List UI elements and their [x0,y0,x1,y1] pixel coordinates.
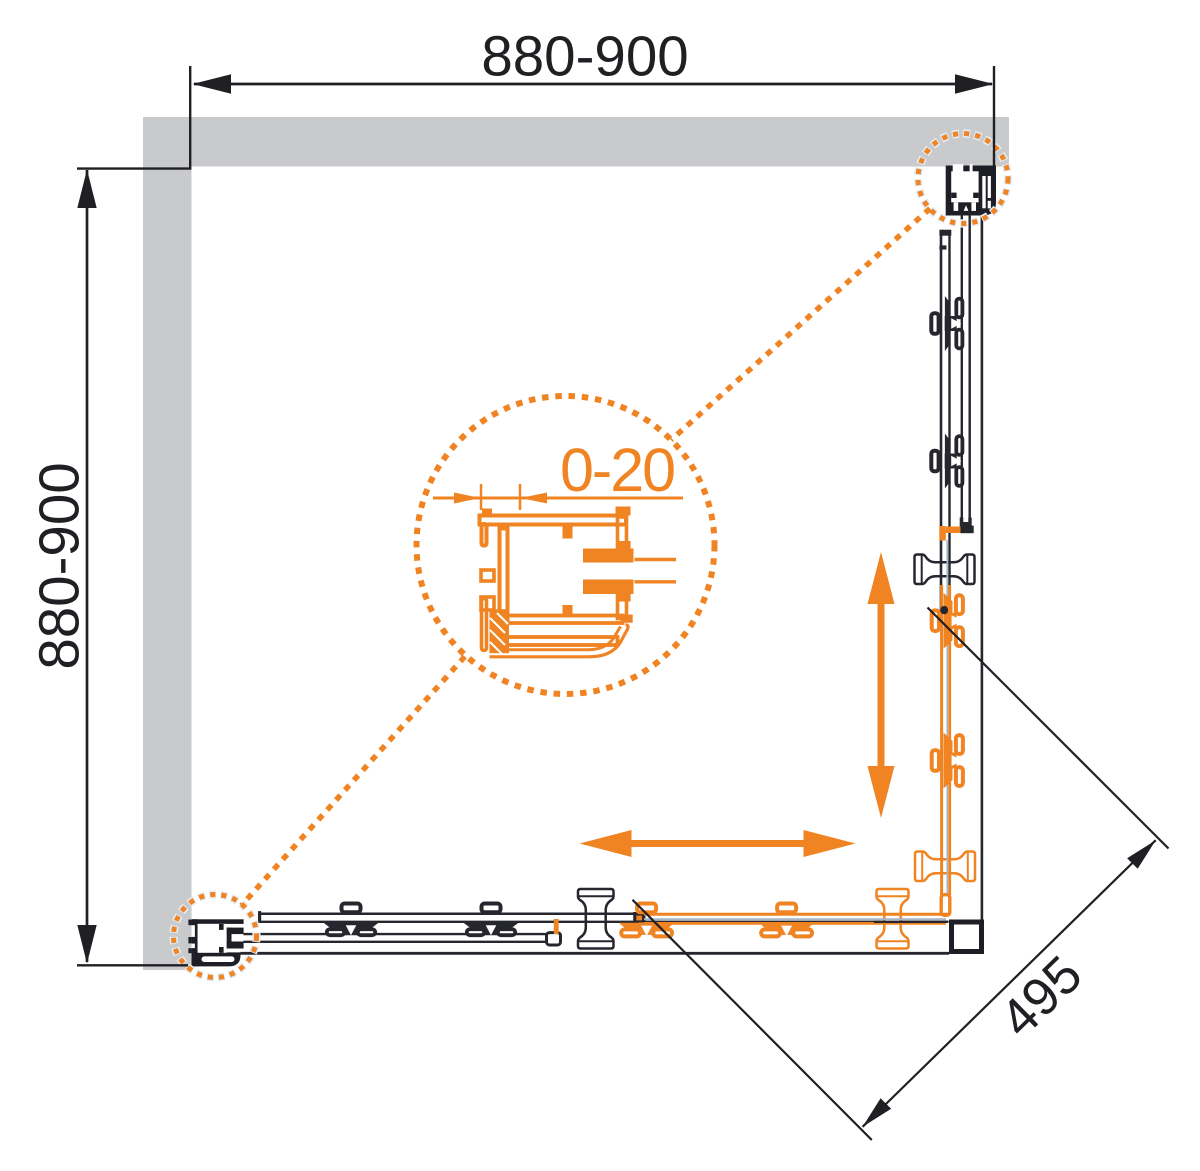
svg-text:880-900: 880-900 [481,25,688,88]
svg-text:880-900: 880-900 [28,462,91,669]
svg-text:495: 495 [989,945,1094,1049]
svg-text:0-20: 0-20 [560,436,674,504]
